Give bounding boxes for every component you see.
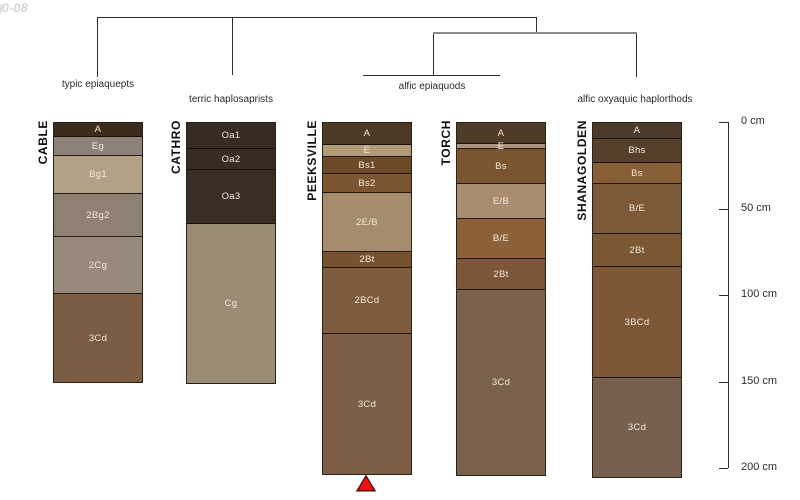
depth-tick — [719, 295, 728, 296]
horizon-a: A — [323, 123, 411, 145]
horizon-label: E — [498, 141, 505, 152]
horizon-label: B/E — [629, 203, 645, 214]
horizon-label: 2Bg2 — [86, 210, 109, 221]
soil-profile-shanagolden: ABhsBsB/E2Bt3BCd3Cd — [592, 122, 682, 478]
profile-name-label: CATHRO — [169, 120, 183, 174]
horizon-label: A — [364, 128, 371, 139]
horizon-eb: E/B — [457, 184, 545, 219]
horizon-label: Bs1 — [358, 160, 375, 171]
horizon-2bt: 2Bt — [323, 252, 411, 268]
horizon-label: 2Bt — [359, 254, 374, 265]
red-triangle-marker — [356, 475, 376, 492]
horizon-label: 2Cg — [89, 260, 107, 271]
horizon-label: Oa1 — [222, 130, 241, 141]
horizon-2bt: 2Bt — [457, 259, 545, 290]
depth-tick — [719, 209, 728, 210]
horizon-cg: Cg — [187, 224, 275, 383]
horizon-label: Oa3 — [222, 191, 241, 202]
dendrogram-branch-shanagolden — [636, 34, 637, 77]
horizon-label: Bs — [631, 168, 643, 179]
horizon-3cd: 3Cd — [323, 334, 411, 474]
horizon-be: B/E — [457, 219, 545, 259]
horizon-label: Bhs — [628, 145, 645, 156]
horizon-2bcd: 2BCd — [323, 268, 411, 334]
depth-tick — [719, 382, 728, 383]
horizon-label: E — [364, 145, 371, 156]
horizon-2bg2: 2Bg2 — [54, 194, 142, 237]
depth-tick — [719, 122, 728, 123]
horizon-label: 2Bt — [629, 245, 644, 256]
horizon-label: 2Bt — [493, 269, 508, 280]
dendrogram-epiaquods-base-line — [363, 75, 500, 76]
horizon-3cd: 3Cd — [593, 378, 681, 477]
horizon-label: Bs — [495, 161, 507, 172]
dendrogram-root-line — [97, 17, 537, 18]
profile-name-label: CABLE — [36, 120, 50, 164]
horizon-oa2: Oa2 — [187, 149, 275, 170]
horizon-label: 3Cd — [628, 422, 646, 433]
depth-tick-label: 100 cm — [741, 288, 777, 300]
horizon-bs1: Bs1 — [323, 157, 411, 174]
soil-profile-figure: 0-08 typic epiaquepts terric haplosapris… — [0, 0, 800, 500]
profile-name-label: SHANAGOLDEN — [575, 120, 589, 221]
horizon-3cd: 3Cd — [54, 294, 142, 382]
dendrogram-branch-right-node — [536, 17, 537, 33]
horizon-be: B/E — [593, 184, 681, 234]
horizon-bs: Bs — [457, 149, 545, 184]
horizon-bs: Bs — [593, 163, 681, 184]
horizon-3bcd: 3BCd — [593, 267, 681, 378]
soil-profile-torch: AEBsE/BB/E2Bt3Cd — [456, 122, 546, 476]
horizon-eg: Eg — [54, 137, 142, 156]
horizon-bhs: Bhs — [593, 139, 681, 163]
cluster-label-typic-epiaquepts: typic epiaquepts — [62, 79, 134, 90]
depth-tick-label: 0 cm — [741, 115, 765, 127]
dendrogram-branch-cathro — [232, 17, 233, 75]
depth-tick-label: 50 cm — [741, 202, 771, 214]
watermark-text: 0-08 — [2, 1, 28, 15]
cluster-label-alfic-oxyaquic-haplorthods: alfic oxyaquic haplorthods — [577, 94, 692, 105]
horizon-label: 3Cd — [89, 333, 107, 344]
horizon-label: 3Cd — [358, 399, 376, 410]
horizon-label: Bg1 — [89, 169, 107, 180]
horizon-a: A — [54, 123, 142, 137]
depth-tick-label: 200 cm — [741, 461, 777, 473]
dendrogram-branch-cable — [97, 17, 98, 77]
profile-name-label: PEEKSVILLE — [305, 120, 319, 201]
horizon-label: 2E/B — [356, 217, 378, 228]
horizon-e: E — [323, 145, 411, 157]
horizon-3cd: 3Cd — [457, 290, 545, 475]
horizon-label: Eg — [92, 141, 104, 152]
horizon-label: Oa2 — [222, 154, 241, 165]
depth-tick — [719, 468, 728, 469]
horizon-label: 2BCd — [355, 295, 380, 306]
horizon-label: A — [95, 124, 102, 135]
horizon-label: 3BCd — [625, 317, 650, 328]
soil-profile-cable: AEgBg12Bg22Cg3Cd — [53, 122, 143, 383]
horizon-label: E/B — [493, 196, 509, 207]
depth-tick-label: 150 cm — [741, 375, 777, 387]
horizon-label: Bs2 — [358, 178, 375, 189]
horizon-2cg: 2Cg — [54, 237, 142, 294]
horizon-label: Cg — [225, 298, 238, 309]
depth-axis-line — [728, 122, 729, 468]
horizon-bs2: Bs2 — [323, 174, 411, 193]
horizon-oa3: Oa3 — [187, 170, 275, 224]
horizon-bg1: Bg1 — [54, 156, 142, 194]
dendrogram-branch-epiaquods — [433, 34, 434, 75]
horizon-2eb: 2E/B — [323, 193, 411, 252]
cluster-label-alfic-epiaquods: alfic epiaquods — [399, 81, 466, 92]
horizon-2bt: 2Bt — [593, 234, 681, 267]
dendrogram-right-cluster-line — [433, 32, 637, 34]
cluster-label-terric-haplosaprists: terric haplosaprists — [189, 94, 273, 105]
horizon-label: A — [498, 128, 505, 139]
horizon-label: 3Cd — [492, 377, 510, 388]
horizon-a: A — [593, 123, 681, 139]
soil-profile-cathro: Oa1Oa2Oa3Cg — [186, 122, 276, 384]
profile-name-label: TORCH — [439, 120, 453, 165]
horizon-label: A — [634, 125, 641, 136]
soil-profile-peeksville: AEBs1Bs22E/B2Bt2BCd3Cd — [322, 122, 412, 475]
horizon-label: B/E — [493, 233, 509, 244]
horizon-oa1: Oa1 — [187, 123, 275, 149]
